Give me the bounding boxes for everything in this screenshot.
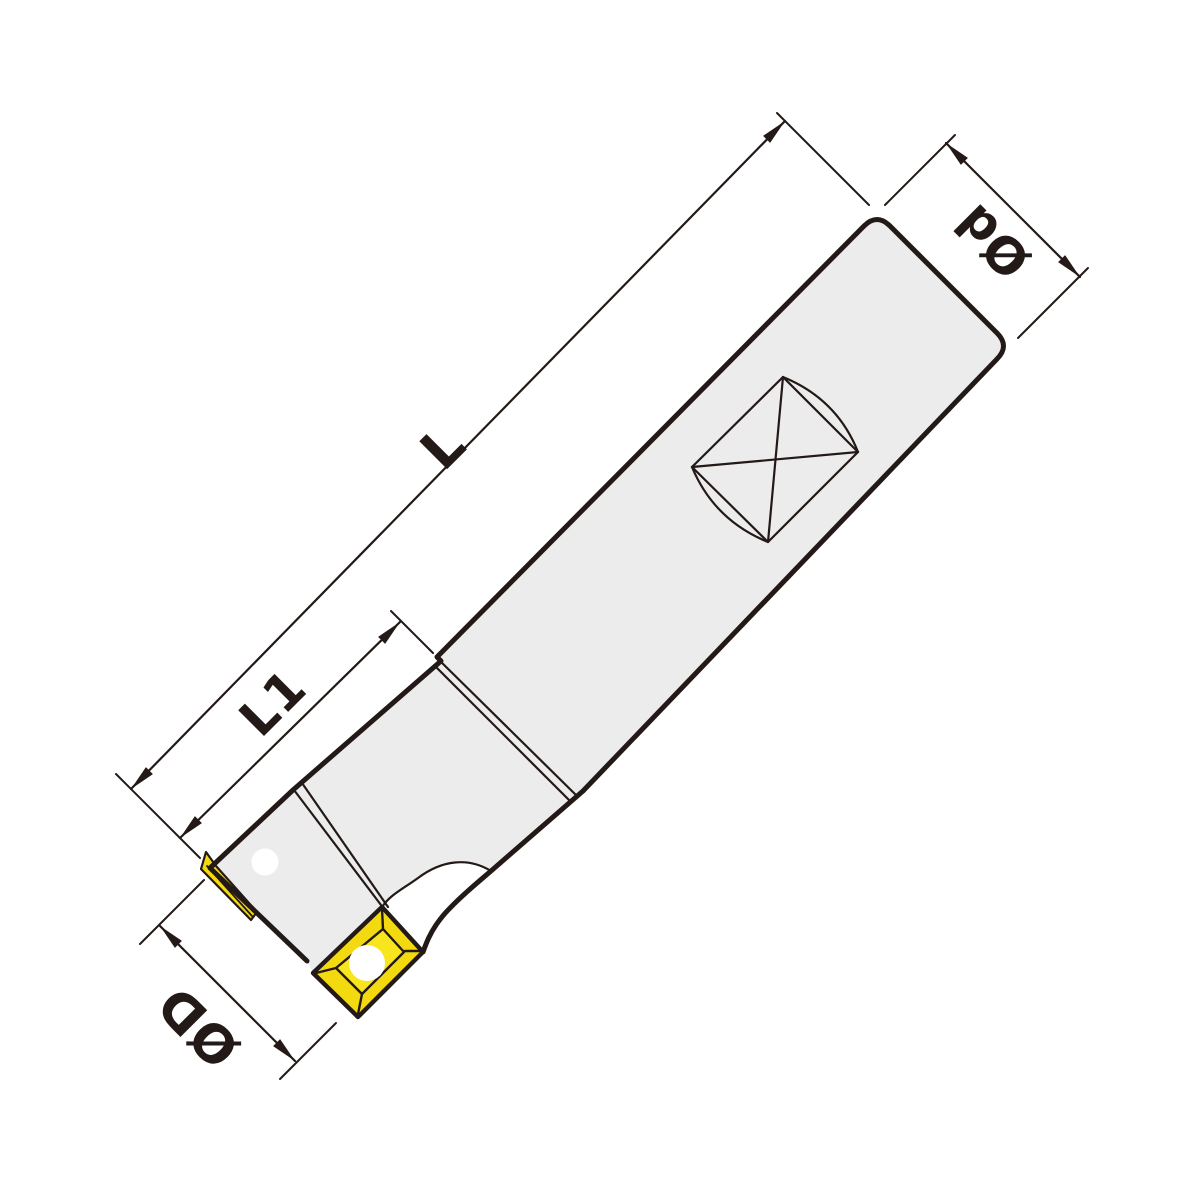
ext-cutdia-b: [280, 1023, 336, 1079]
label-cutting-diameter: ØD: [146, 973, 252, 1079]
ext-L-top: [777, 113, 869, 205]
torx-screw-icon: [349, 945, 385, 981]
ext-shankdia-a: [885, 135, 955, 205]
label-overall-length: L: [408, 412, 478, 482]
label-head-length: L1: [228, 658, 318, 748]
tool-body: [210, 220, 1004, 974]
end-mill-diagram: L L1 Ød ØD: [0, 0, 1200, 1200]
ext-shankdia-b: [1018, 268, 1088, 338]
label-shank-diameter: Ød: [944, 192, 1042, 290]
pin-hole: [252, 849, 279, 876]
ext-L1-top: [391, 611, 433, 653]
technical-drawing-canvas: L L1 Ød ØD: [0, 0, 1200, 1200]
ext-tip-shared: [116, 774, 200, 858]
